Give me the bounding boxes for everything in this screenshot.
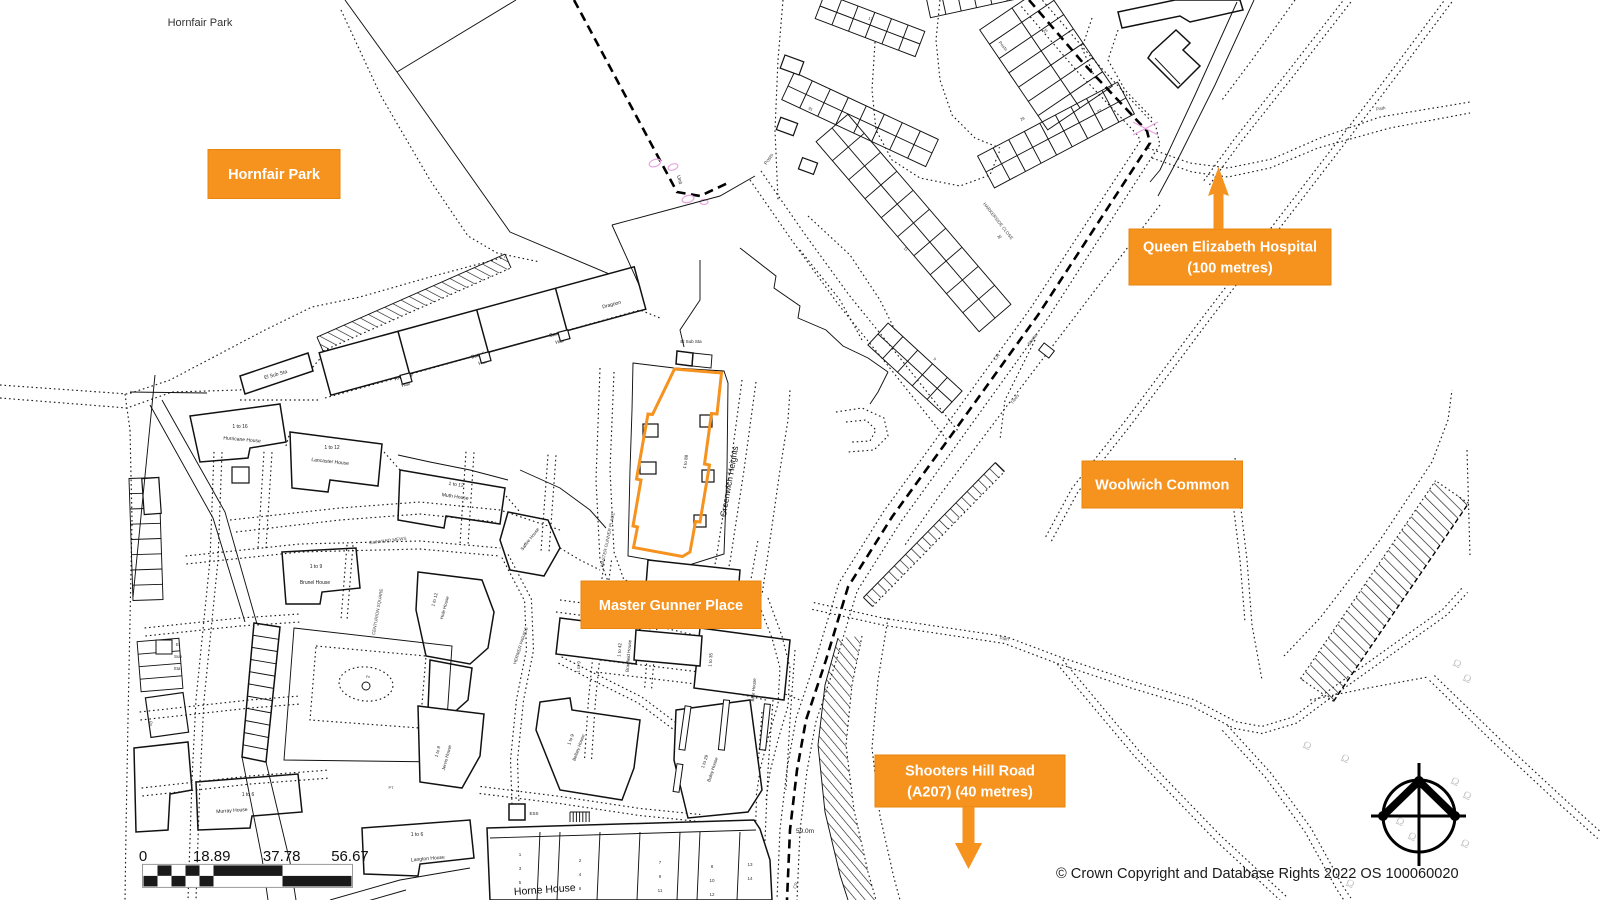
svg-text:1 to 9: 1 to 9 xyxy=(576,661,582,673)
svg-text:1 to 9: 1 to 9 xyxy=(310,564,323,570)
svg-text:Fn: Fn xyxy=(366,675,370,679)
svg-text:Woolwich Common: Woolwich Common xyxy=(1095,478,1229,494)
svg-text:Hornfair Park: Hornfair Park xyxy=(228,167,321,183)
svg-text:(100 metres): (100 metres) xyxy=(1187,261,1273,277)
svg-text:0: 0 xyxy=(139,848,147,865)
svg-text:1 to 6: 1 to 6 xyxy=(411,832,424,838)
svg-text:(A207) (40 metres): (A207) (40 metres) xyxy=(907,785,1033,801)
svg-text:12: 12 xyxy=(709,892,715,897)
svg-text:1 to 6: 1 to 6 xyxy=(242,792,255,798)
svg-text:ESS: ESS xyxy=(529,811,538,816)
svg-text:37.78: 37.78 xyxy=(263,848,301,865)
svg-text:Shooters Hill Road: Shooters Hill Road xyxy=(905,764,1035,780)
svg-text:© Crown Copyright and Database: © Crown Copyright and Database Rights 20… xyxy=(1056,866,1459,882)
svg-text:Sta: Sta xyxy=(174,666,181,671)
svg-text:PT: PT xyxy=(388,785,394,790)
svg-text:Queen Elizabeth Hospital: Queen Elizabeth Hospital xyxy=(1143,240,1317,256)
svg-text:Brunel House: Brunel House xyxy=(300,580,331,586)
svg-text:1 to 12: 1 to 12 xyxy=(324,445,340,451)
svg-text:1 to 16: 1 to 16 xyxy=(232,424,248,430)
svg-text:13: 13 xyxy=(747,862,753,867)
svg-text:18.89: 18.89 xyxy=(193,848,231,865)
svg-text:10: 10 xyxy=(709,878,715,883)
svg-text:11: 11 xyxy=(658,888,663,893)
svg-text:Master Gunner Place: Master Gunner Place xyxy=(599,598,743,614)
svg-text:El Sub Sta: El Sub Sta xyxy=(680,339,702,344)
svg-text:Sub: Sub xyxy=(174,654,183,659)
svg-text:59.0m: 59.0m xyxy=(796,828,814,835)
svg-text:El: El xyxy=(176,642,180,647)
svg-text:Hornfair Park: Hornfair Park xyxy=(168,17,233,29)
svg-text:56.67: 56.67 xyxy=(331,848,369,865)
svg-text:14: 14 xyxy=(747,876,753,881)
